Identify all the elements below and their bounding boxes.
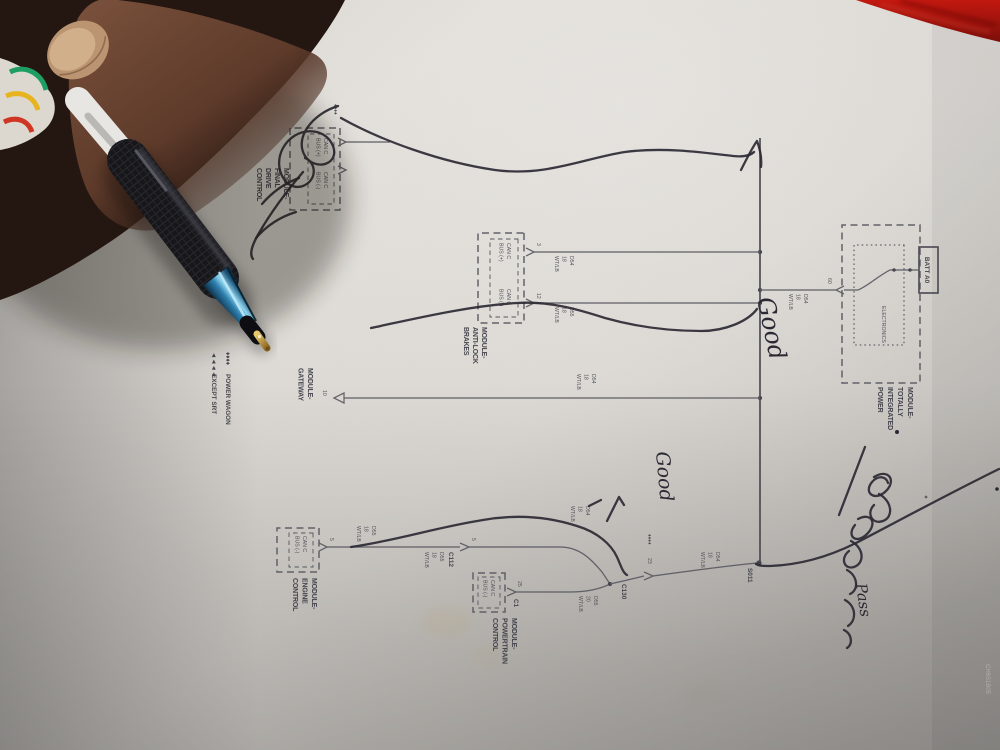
wire-label-line: 18 bbox=[431, 552, 437, 558]
tipm-fuse-label: BATT A0 bbox=[923, 257, 930, 284]
abs-name-line: ANTI-LOCK bbox=[471, 327, 478, 364]
wire-label-line: D54 bbox=[714, 552, 720, 562]
tipm-name-line: INTEGRATED bbox=[886, 387, 893, 430]
ecm-can-minus-line: BUS (-) bbox=[294, 536, 300, 554]
wire-label-line: WT/LB bbox=[575, 374, 581, 390]
wire-label-line: WT/LB bbox=[787, 294, 793, 310]
wire-label-line: 18 bbox=[577, 506, 583, 512]
abs-can-plus-line: BUS (+) bbox=[498, 243, 504, 262]
wire-label-line: 20 bbox=[585, 596, 591, 602]
tipm-name-line: TOTALLY bbox=[896, 387, 903, 417]
ecm-can-minus-line: CAN C bbox=[301, 536, 307, 552]
pcm-name-line: POWERTRAIN bbox=[501, 618, 508, 664]
abs-pin-number: 3 bbox=[535, 243, 541, 246]
pcm-pin-number: 25 bbox=[516, 581, 522, 587]
sheet-code: CH6S1B05 bbox=[984, 664, 990, 695]
note-power-wagon: POWER WAGON bbox=[224, 374, 231, 425]
c130-bullets: ♦♦♦♦ bbox=[646, 534, 652, 545]
splice-s011-label: S011 bbox=[746, 568, 753, 583]
wire-label-line: 18 bbox=[561, 256, 567, 262]
gateway-pin-number: 10 bbox=[321, 390, 327, 396]
c130-pin-number: 23 bbox=[646, 558, 652, 564]
wire-label-line: 18 bbox=[363, 526, 369, 532]
tipm-dot bbox=[892, 268, 895, 271]
tipm-dot bbox=[908, 268, 911, 271]
tipm-pin-number: 60 bbox=[826, 278, 832, 284]
c130-label: C130 bbox=[620, 584, 627, 600]
wire-label-line: D55 bbox=[592, 596, 598, 606]
wire-label-line: 18 bbox=[795, 294, 801, 300]
pen-dot bbox=[895, 430, 899, 434]
tipm-electronics-label: ELECTRONICS bbox=[880, 306, 886, 343]
c1-label: C1 bbox=[512, 599, 519, 608]
ecm-pin-number: 5 bbox=[328, 538, 334, 541]
wire-label-line: D54 bbox=[590, 374, 596, 384]
wire-label-line: D54 bbox=[584, 506, 590, 516]
tipm-name-line: POWER bbox=[876, 387, 883, 413]
ecm-name-line: CONTROL bbox=[291, 578, 298, 612]
pcm-name-line: CONTROL bbox=[491, 618, 498, 652]
pen-tip-glint bbox=[258, 335, 261, 338]
c112-label: C112 bbox=[447, 552, 454, 567]
pcm-can-minus-line: CAN C bbox=[489, 580, 495, 596]
abs-name-line: MODULE- bbox=[480, 327, 487, 359]
wire-label-line: 18 bbox=[583, 374, 589, 380]
pcm-name-line: MODULE- bbox=[510, 618, 517, 650]
scene: S011 BATT A0 ELECTRONICS 60 MODULE- TOTA… bbox=[0, 0, 1000, 750]
c112-pin-number: 5 bbox=[470, 538, 476, 541]
pen-dot bbox=[925, 496, 928, 499]
note-except-srt: EXCEPT SRT bbox=[210, 374, 217, 414]
wire-label-line: D54 bbox=[802, 294, 808, 304]
abs-name-line: BRAKES bbox=[462, 327, 469, 356]
ecm-name-line: ENGINE bbox=[301, 578, 308, 604]
wire-label-line: WT/LB bbox=[423, 552, 429, 568]
abs-pin-number: 12 bbox=[535, 293, 541, 299]
abs-can-plus-line: CAN C bbox=[505, 243, 511, 259]
wire-label-line: WT/LB bbox=[355, 526, 361, 542]
wire-label-line: WT/LB bbox=[699, 552, 705, 568]
note-bullets: ♦♦♦♦ bbox=[224, 352, 231, 366]
ecm-name-line: MODULE- bbox=[310, 578, 317, 610]
pen-dot bbox=[995, 487, 999, 491]
pcm-can-minus-line: BUS (-) bbox=[482, 580, 488, 598]
wire-label-line: D55 bbox=[370, 526, 376, 536]
wire-label-line: 18 bbox=[707, 552, 713, 558]
pen-ball-point bbox=[266, 347, 270, 351]
gateway-name-line: MODULE- bbox=[306, 368, 313, 400]
tipm-name-line: MODULE- bbox=[906, 387, 913, 419]
wire-label-line: WT/LB bbox=[577, 596, 583, 612]
hand bbox=[0, 0, 350, 350]
wire-label-line: D55 bbox=[438, 552, 444, 562]
gateway-name-line: GATEWAY bbox=[297, 368, 304, 401]
wire-label-line: WT/LB bbox=[569, 506, 575, 522]
wire-label-line: WT/LB bbox=[553, 307, 559, 323]
photo-of-wiring-diagram-page: S011 BATT A0 ELECTRONICS 60 MODULE- TOTA… bbox=[0, 0, 1000, 750]
wire-label-line: D54 bbox=[568, 256, 574, 266]
wire-label-line: WT/LB bbox=[553, 256, 559, 272]
handwriting-good-2: Good bbox=[651, 451, 677, 503]
